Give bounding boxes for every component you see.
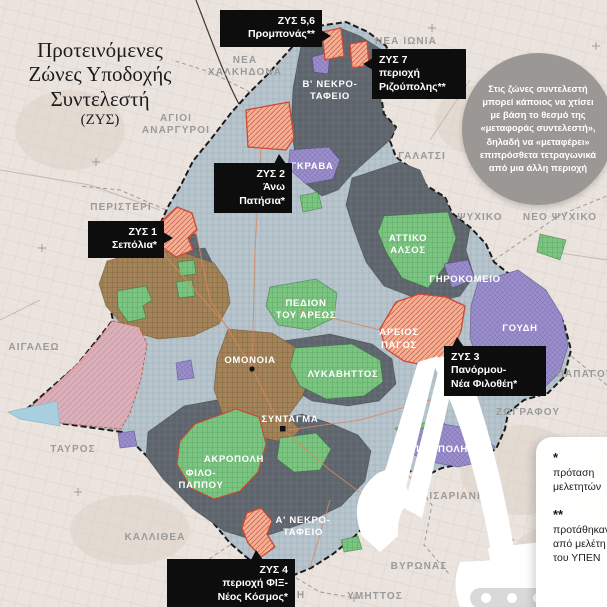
- footnote-card: * πρόταση μελετητών ** προτάθηκαν από με…: [536, 437, 607, 607]
- callout-pointer: [321, 30, 331, 42]
- title-acronym: (ΖΥΣ): [6, 112, 194, 129]
- callout-zone-name: περιοχή ΦΙΞ-: [174, 577, 288, 590]
- callout-zys7-rizoupoli: ΖΥΣ 7 περιοχή Ριζούπολης**: [372, 49, 466, 99]
- footnote-text-2: προτάθηκαν από μελέτη του ΥΠΕΝ: [553, 524, 607, 565]
- callout-pointer: [452, 337, 464, 347]
- callout-zys4-fix-neos-kosmos: ΖΥΣ 4 περιοχή ΦΙΞ- Νέος Κόσμος*: [167, 559, 295, 607]
- callout-zys5-6-probonas: ΖΥΣ 5,6 Προμπονάς**: [220, 10, 322, 47]
- callout-zone-name2: Νέα Φιλοθέη*: [451, 378, 539, 391]
- callout-zone-id: ΖΥΣ 1: [95, 226, 157, 239]
- callout-zone-name: Προμπονάς**: [227, 28, 315, 41]
- callout-zys3-panormou: ΖΥΣ 3 Πανόρμου- Νέα Φιλοθέη*: [444, 346, 546, 396]
- callout-pointer: [363, 58, 373, 70]
- callout-zone-name2: Πατήσια*: [221, 195, 285, 208]
- callout-zys2-ano-patisia: ΖΥΣ 2 Άνω Πατήσια*: [214, 163, 292, 213]
- callout-zone-name: Σεπόλια*: [95, 239, 157, 252]
- infographic-athens-zys: ΝΕΑ ΙΩΝΙΑ ΝΕΑ ΧΑΛΚΗΔΟΝΑ ΑΓΙΟΙ ΑΝΑΡΓΥΡΟΙ …: [0, 0, 607, 607]
- page-title: Προτεινόμενες Ζώνες Υποδοχής Συντελεστή …: [6, 38, 194, 129]
- callout-zone-name: περιοχή: [379, 67, 459, 80]
- info-circle: Στις ζώνες συντελεστή μπορεί κάποιος να …: [462, 53, 607, 205]
- footnote-star-1: *: [553, 451, 607, 464]
- callout-zys1-sepolia: ΖΥΣ 1 Σεπόλια*: [88, 221, 164, 258]
- title-line-3: Συντελεστή: [6, 87, 194, 111]
- callout-pointer: [163, 232, 173, 244]
- callout-zone-id: ΖΥΣ 4: [174, 564, 288, 577]
- callout-zone-id: ΖΥΣ 2: [221, 168, 285, 181]
- title-line-1: Προτεινόμενες: [6, 38, 194, 62]
- callout-zone-id: ΖΥΣ 5,6: [227, 15, 315, 28]
- footnote-star-2: **: [553, 508, 607, 521]
- callout-zone-id: ΖΥΣ 3: [451, 351, 539, 364]
- title-line-2: Ζώνες Υποδοχής: [6, 62, 194, 86]
- callout-zone-name: Άνω: [221, 181, 285, 194]
- info-circle-text: Στις ζώνες συντελεστή μπορεί κάποιος να …: [479, 83, 597, 175]
- callout-pointer: [274, 154, 286, 164]
- callout-zone-name: Πανόρμου-: [451, 364, 539, 377]
- callout-zone-id: ΖΥΣ 7: [379, 54, 459, 67]
- callout-pointer: [251, 550, 263, 560]
- footnote-text-1: πρόταση μελετητών: [553, 467, 607, 494]
- callout-zone-name2: Ριζούπολης**: [379, 81, 459, 94]
- callout-zone-name2: Νέος Κόσμος*: [174, 591, 288, 604]
